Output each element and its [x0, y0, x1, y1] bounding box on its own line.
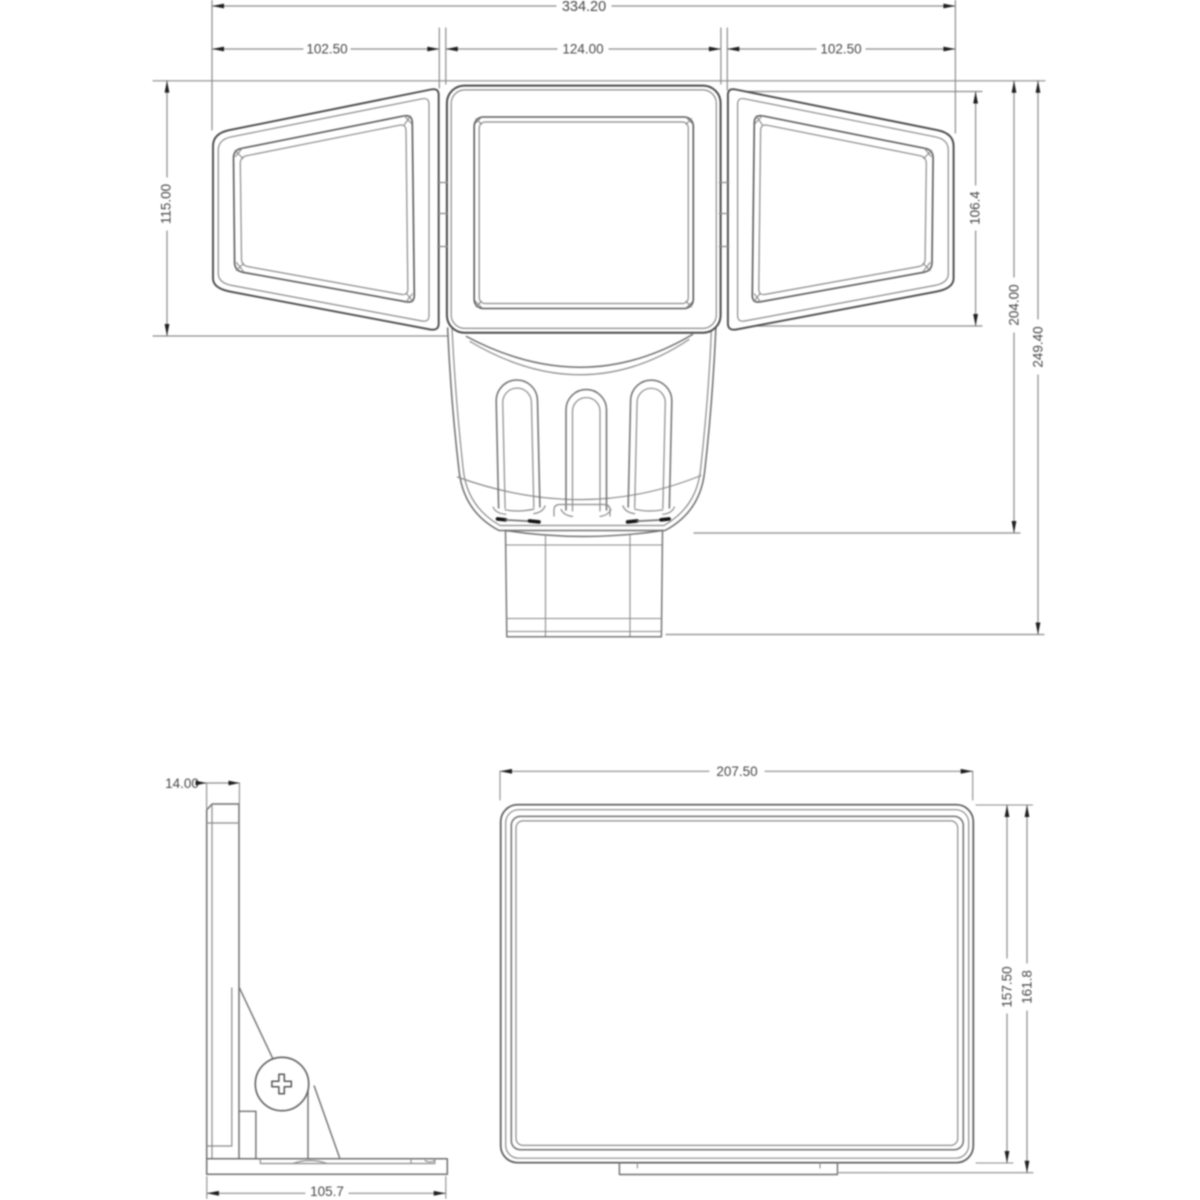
svg-text:106.4: 106.4: [968, 191, 983, 225]
svg-text:157.50: 157.50: [1000, 966, 1015, 1007]
svg-text:115.00: 115.00: [159, 184, 174, 224]
svg-text:14.00: 14.00: [165, 776, 199, 791]
svg-text:334.20: 334.20: [562, 0, 606, 15]
svg-text:161.8: 161.8: [1020, 970, 1035, 1004]
svg-text:124.00: 124.00: [562, 42, 603, 57]
svg-text:105.7: 105.7: [310, 1184, 344, 1199]
svg-text:102.50: 102.50: [820, 42, 861, 57]
svg-text:249.40: 249.40: [1031, 326, 1046, 367]
svg-text:102.50: 102.50: [306, 42, 347, 57]
svg-text:204.00: 204.00: [1007, 284, 1022, 325]
svg-text:207.50: 207.50: [716, 764, 757, 779]
